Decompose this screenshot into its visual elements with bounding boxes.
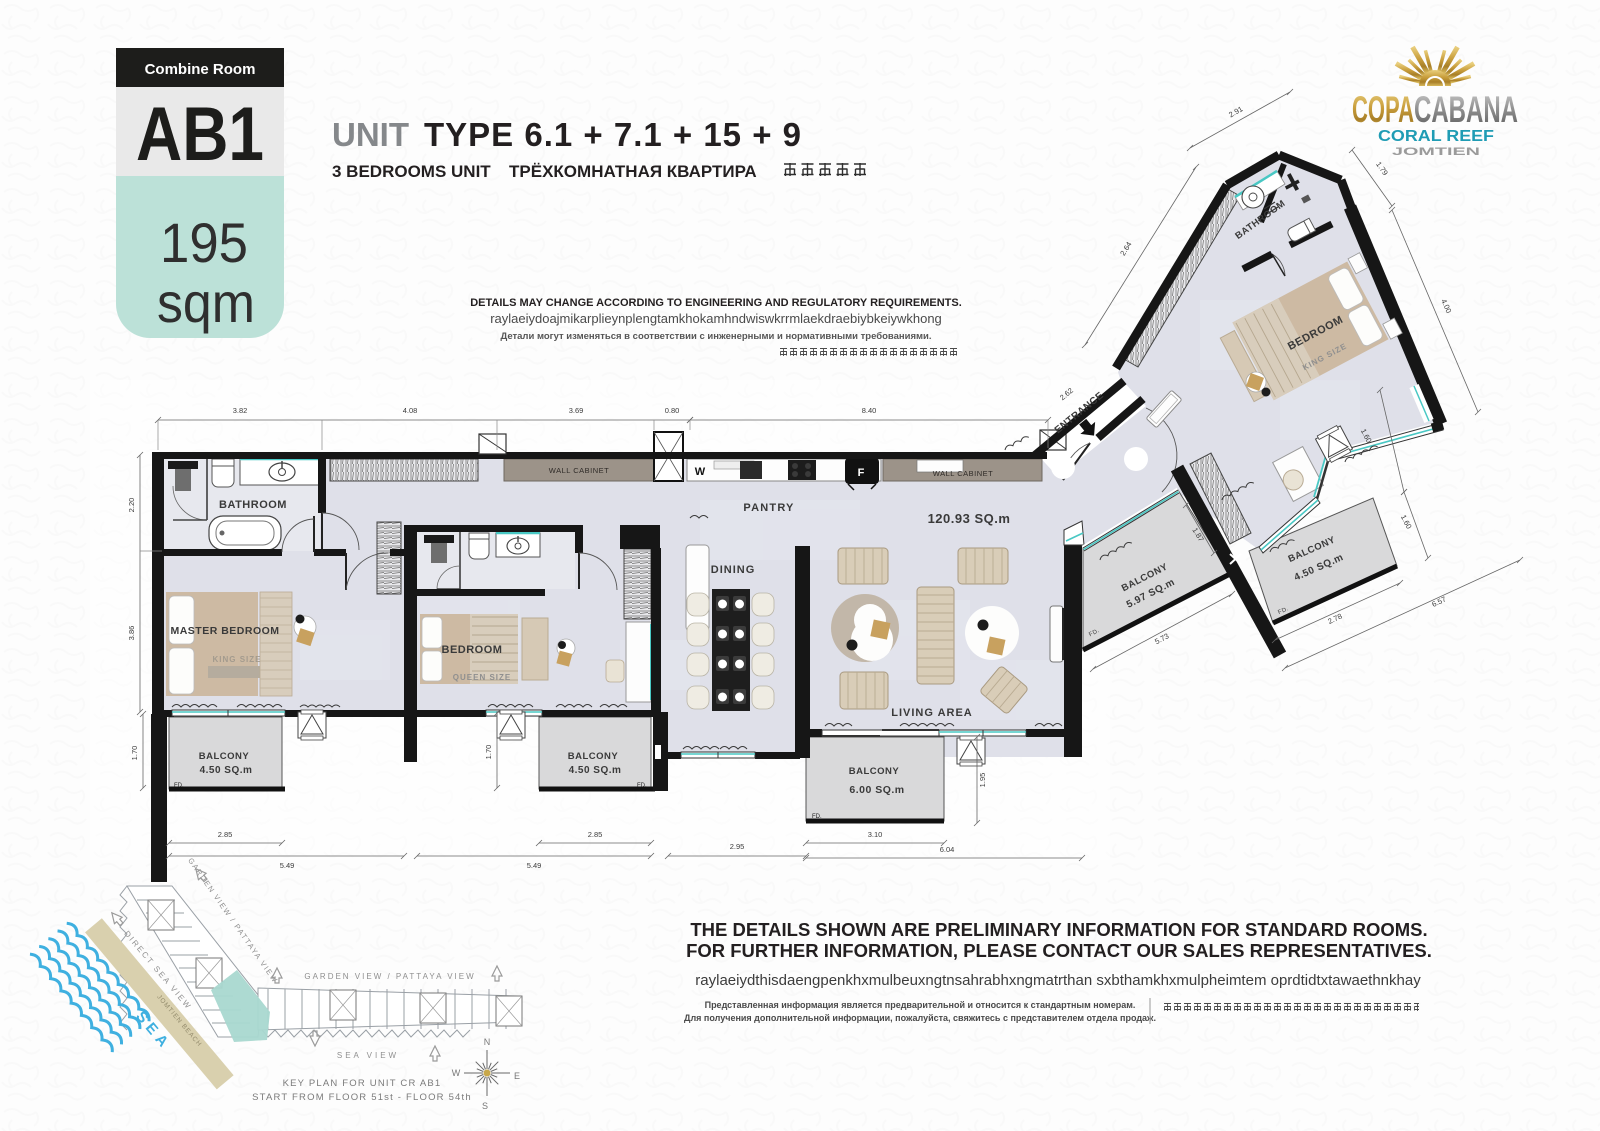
svg-text:1.70: 1.70 <box>484 745 493 760</box>
svg-text:6.04: 6.04 <box>940 845 955 854</box>
svg-text:KING SIZE: KING SIZE <box>212 655 261 664</box>
svg-text:BATHROOM: BATHROOM <box>219 499 287 511</box>
svg-text:UNIT: UNIT <box>332 116 409 153</box>
svg-text:3.69: 3.69 <box>569 406 584 415</box>
svg-text:2.85: 2.85 <box>218 830 233 839</box>
svg-text:5.49: 5.49 <box>527 861 542 870</box>
svg-text:4.08: 4.08 <box>403 406 418 415</box>
svg-text:CORAL REEF: CORAL REEF <box>1378 128 1494 145</box>
svg-text:THE DETAILS SHOWN ARE PRELIMIN: THE DETAILS SHOWN ARE PRELIMINARY INFORM… <box>690 919 1427 940</box>
svg-text:2.95: 2.95 <box>730 842 745 851</box>
svg-text:QUEEN SIZE: QUEEN SIZE <box>453 673 511 682</box>
svg-text:ТРЁХКОМНАТНАЯ КВАРТИРА: ТРЁХКОМНАТНАЯ КВАРТИРА <box>509 162 757 181</box>
svg-text:AB1: AB1 <box>136 92 264 177</box>
svg-text:5.49: 5.49 <box>280 861 295 870</box>
svg-text:BALCONY: BALCONY <box>568 751 619 762</box>
svg-text:8.40: 8.40 <box>862 406 877 415</box>
svg-text:3.82: 3.82 <box>233 406 248 415</box>
svg-text:4.50 SQ.m: 4.50 SQ.m <box>200 765 253 776</box>
svg-text:F: F <box>858 467 865 479</box>
svg-text:DINING: DINING <box>711 564 756 576</box>
svg-text:2.85: 2.85 <box>588 830 603 839</box>
svg-text:FD.: FD. <box>637 783 647 789</box>
svg-text:GARDEN VIEW / PATTAYA VIEW: GARDEN VIEW / PATTAYA VIEW <box>304 972 475 981</box>
svg-text:W: W <box>695 466 706 478</box>
svg-text:FD.: FD. <box>812 814 822 820</box>
svg-text:TYPE 6.1 + 7.1 + 15 + 9: TYPE 6.1 + 7.1 + 15 + 9 <box>424 116 802 153</box>
svg-text:FOR FURTHER INFORMATION, PLEAS: FOR FURTHER INFORMATION, PLEASE CONTACT … <box>686 940 1432 961</box>
svg-text:MASTER BEDROOM: MASTER BEDROOM <box>170 625 279 637</box>
svg-text:WALL CABINET: WALL CABINET <box>549 466 609 475</box>
svg-text:JOMTIEN: JOMTIEN <box>1392 146 1480 158</box>
svg-text:Представленная информация явля: Представленная информация является предв… <box>705 1000 1136 1010</box>
svg-text:E: E <box>514 1071 520 1081</box>
svg-text:1.95: 1.95 <box>978 773 987 788</box>
svg-text:3.86: 3.86 <box>127 626 136 641</box>
svg-text:sqm: sqm <box>157 271 255 334</box>
svg-text:1.70: 1.70 <box>130 746 139 761</box>
svg-text:6.00 SQ.m: 6.00 SQ.m <box>849 784 904 796</box>
svg-text:BALCONY: BALCONY <box>849 766 900 777</box>
svg-text:KEY PLAN FOR UNIT CR AB1: KEY PLAN FOR UNIT CR AB1 <box>283 1078 442 1089</box>
svg-text:4.50 SQ.m: 4.50 SQ.m <box>569 765 622 776</box>
svg-text:CABANA: CABANA <box>1414 89 1518 130</box>
svg-text:raylaeiydoajmikarplieynplengta: raylaeiydoajmikarplieynplengtamkhokamhnd… <box>490 311 942 326</box>
svg-text:FD.: FD. <box>174 783 184 789</box>
svg-text:WALL CABINET: WALL CABINET <box>933 469 993 478</box>
svg-text:0.80: 0.80 <box>665 406 680 415</box>
svg-text:120.93 SQ.m: 120.93 SQ.m <box>928 511 1011 526</box>
svg-text:3 BEDROOMS UNIT: 3 BEDROOMS UNIT <box>332 162 491 181</box>
svg-text:PANTRY: PANTRY <box>743 502 794 514</box>
svg-text:195: 195 <box>160 211 248 274</box>
svg-text:DETAILS MAY CHANGE ACCORDING T: DETAILS MAY CHANGE ACCORDING TO ENGINEER… <box>470 297 962 309</box>
svg-text:W: W <box>452 1068 461 1078</box>
svg-text:raylaeiydthisdaengpenkhxmulbeu: raylaeiydthisdaengpenkhxmulbeuxngtnsahra… <box>695 972 1421 989</box>
svg-text:2.20: 2.20 <box>127 498 136 513</box>
svg-text:Детали могут изменяться в соот: Детали могут изменяться в соответствии с… <box>500 331 931 342</box>
svg-text:Для получения дополнительной и: Для получения дополнительной информации,… <box>684 1013 1156 1023</box>
svg-text:Combine Room: Combine Room <box>145 61 256 78</box>
svg-text:START FROM FLOOR 51st - FLOOR: START FROM FLOOR 51st - FLOOR 54th <box>252 1092 472 1103</box>
svg-text:BALCONY: BALCONY <box>199 751 250 762</box>
svg-text:LIVING AREA: LIVING AREA <box>891 707 973 719</box>
svg-text:S: S <box>482 1101 488 1111</box>
svg-text:COPA: COPA <box>1352 89 1414 130</box>
svg-text:N: N <box>484 1037 491 1047</box>
svg-text:BEDROOM: BEDROOM <box>442 644 503 656</box>
svg-text:SEA VIEW: SEA VIEW <box>337 1051 399 1060</box>
svg-text:3.10: 3.10 <box>868 830 883 839</box>
